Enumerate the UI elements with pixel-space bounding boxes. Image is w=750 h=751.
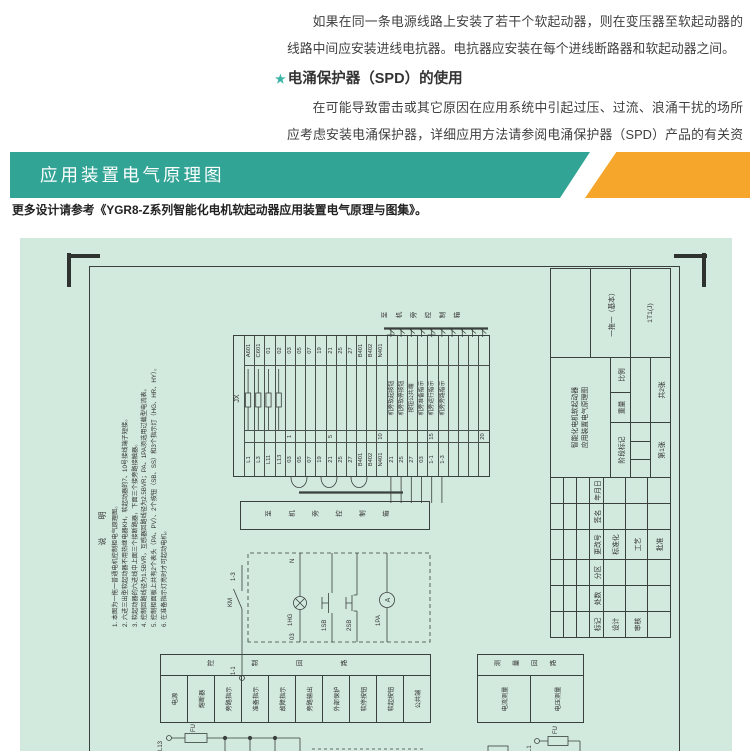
terminal-row: 07 07 bbox=[305, 336, 315, 476]
wire-label: N bbox=[290, 559, 297, 563]
drawing-title-cell: 智能化电机软起动器 应用装置电气原理图 bbox=[551, 357, 611, 477]
revision-header-cell: 分区 bbox=[590, 560, 604, 586]
control-circuit-fragment bbox=[167, 734, 424, 751]
terminal-description: 机旁运行指示 bbox=[428, 366, 437, 431]
terminal-description bbox=[357, 366, 366, 431]
terminal-wire: 25 bbox=[337, 336, 346, 366]
button-label: 2SB bbox=[347, 620, 354, 631]
standard-label: 标准化 bbox=[604, 530, 626, 560]
terminal-rows: L1 A601 L3 C601 L11 bbox=[244, 336, 489, 476]
sheet-total: 共2张 bbox=[651, 357, 671, 422]
terminal-row: L13 02 bbox=[275, 336, 285, 476]
control-station-box: 至机旁控制箱 bbox=[240, 501, 430, 530]
terminal-row: 03 1 03 bbox=[285, 336, 295, 476]
terminal-description bbox=[459, 366, 468, 431]
drawing-area: 说 明 1. 本图为一拖一普通电机控制柜电气原理图。2. 六进三出型软起动器不用… bbox=[20, 238, 732, 751]
terminal-number bbox=[398, 431, 407, 443]
terminal-row: N401 10 N401 bbox=[376, 336, 386, 476]
legend-header: 测量回路 bbox=[478, 655, 584, 676]
approve-label: 批准 bbox=[648, 530, 671, 560]
legend-cell: 旁路输出 bbox=[296, 676, 323, 723]
terminal-number bbox=[265, 431, 274, 443]
terminal-name: 03 bbox=[286, 443, 295, 476]
terminal-wire bbox=[418, 336, 427, 366]
button-label: 1SB bbox=[322, 620, 329, 631]
revision-header-cell: 签名 bbox=[590, 504, 604, 530]
reference-caption: 更多设计请参考《YGR8-Z系列智能化电机软起动器应用装置电气原理与图集》。 bbox=[12, 201, 732, 218]
terminal-wire: B401 bbox=[357, 336, 366, 366]
terminal-number: 10 bbox=[377, 431, 386, 443]
design-label: 设计 bbox=[604, 612, 626, 638]
terminal-name: 27 bbox=[408, 443, 417, 476]
terminal-name: L1 bbox=[245, 443, 254, 476]
terminal-row: 03 机旁准备指示 bbox=[417, 336, 427, 476]
wire-label: 1-3 bbox=[231, 572, 238, 581]
terminal-row: 21 5 21 bbox=[326, 336, 336, 476]
terminal-number bbox=[255, 431, 264, 443]
legend-cell: 电流测量 bbox=[478, 676, 531, 723]
terminal-number bbox=[306, 431, 315, 443]
terminal-number bbox=[449, 431, 458, 443]
terminal-wire bbox=[459, 336, 468, 366]
sheet-number: 第1张 bbox=[651, 423, 671, 478]
terminal-description: 机旁准备指示 bbox=[418, 366, 427, 431]
terminal-number: 1 bbox=[286, 431, 295, 443]
drawing-title-line2: 应用装置电气原理图 bbox=[581, 358, 591, 477]
revision-header-cell: 年月日 bbox=[590, 478, 604, 504]
terminal-number bbox=[316, 431, 325, 443]
terminal-wire: 02 bbox=[276, 336, 285, 366]
scale-label: 比例 bbox=[611, 357, 631, 392]
terminal-row: 1-1 15 机旁运行指示 bbox=[427, 336, 437, 476]
lamp-symbol bbox=[294, 553, 307, 642]
revision-header-cell: 更改号 bbox=[590, 530, 604, 560]
revision-header-row: 标记处数分区更改号签名年月日 bbox=[590, 478, 604, 638]
terminal-wire: 07 bbox=[306, 336, 315, 366]
terminal-wire bbox=[469, 336, 478, 366]
terminal-name: 03 bbox=[418, 443, 427, 476]
control-legend-table: 电源 控制回路 熔断器 旁路指示 准备指示 故障指示 旁路输出 外部保护 软停按… bbox=[160, 654, 431, 723]
terminal-description bbox=[377, 366, 386, 431]
terminal-table: JX L1 A601 L3 C601 bbox=[233, 335, 490, 477]
terminal-row: L3 C601 bbox=[254, 336, 264, 476]
legend-cell: 电压测量 bbox=[531, 676, 584, 723]
terminal-description: 按钮公共端 bbox=[408, 366, 417, 431]
terminal-name bbox=[459, 443, 468, 476]
terminal-row: 21 机旁软起按钮 bbox=[387, 336, 397, 476]
section-title: 应用装置电气原理图 bbox=[40, 162, 225, 187]
wire-label: L1 bbox=[527, 745, 534, 751]
terminal-wire: 19 bbox=[316, 336, 325, 366]
terminal-number bbox=[245, 431, 254, 443]
terminal-description bbox=[286, 366, 295, 431]
terminal-number: 15 bbox=[428, 431, 437, 443]
craft-label: 工艺 bbox=[626, 530, 648, 560]
drawing-title-line1: 智能化电机软起动器 bbox=[571, 358, 581, 477]
schematic-sheet: 说 明 1. 本图为一拖一普通电机控制柜电气原理图。2. 六进三出型软起动器不用… bbox=[85, 255, 705, 751]
contact-label: KM bbox=[228, 598, 235, 607]
intro-text-block: 如果在同一条电源线路上安装了若干个软起动器，则在变压器至软起动器的线路中间应安装… bbox=[287, 8, 743, 175]
terminal-wire: 27 bbox=[347, 336, 356, 366]
terminal-name: 25 bbox=[398, 443, 407, 476]
terminal-description bbox=[449, 366, 458, 431]
terminal-row bbox=[468, 336, 478, 476]
paragraph-line: 如果在同一条电源线路上安装了若干个软起动器，则在变压器至软起动器的 bbox=[313, 14, 743, 29]
terminal-number: 20 bbox=[479, 431, 488, 443]
terminal-name: B401 bbox=[357, 443, 366, 476]
legend-cell: 准备指示 bbox=[242, 676, 269, 723]
legend-cell: 故障指示 bbox=[269, 676, 296, 723]
dashed-panel-box bbox=[248, 553, 430, 642]
terminal-row: B401 B401 bbox=[356, 336, 366, 476]
terminal-row: 27 27 bbox=[346, 336, 356, 476]
terminal-number bbox=[296, 431, 305, 443]
wire-label: L13 bbox=[158, 741, 165, 751]
terminal-wire bbox=[449, 336, 458, 366]
terminal-name: L13 bbox=[276, 443, 285, 476]
terminal-row: L1 A601 bbox=[244, 336, 254, 476]
legend-cell: 软停按钮 bbox=[350, 676, 377, 723]
terminal-table-title: JX bbox=[234, 366, 244, 431]
terminal-name: 25 bbox=[337, 443, 346, 476]
terminal-name bbox=[479, 443, 488, 476]
legend-cell: 电源 bbox=[161, 676, 188, 723]
terminal-wire: A601 bbox=[245, 336, 254, 366]
terminal-number bbox=[388, 431, 397, 443]
terminal-number bbox=[408, 431, 417, 443]
terminal-number bbox=[439, 431, 448, 443]
terminal-name: 21 bbox=[388, 443, 397, 476]
terminal-description bbox=[265, 366, 274, 431]
terminal-description bbox=[337, 366, 346, 431]
terminal-name: 21 bbox=[327, 443, 336, 476]
terminal-wire: B402 bbox=[367, 336, 376, 366]
revision-header-cell: 处数 bbox=[590, 586, 604, 612]
measure-circuit-fragment bbox=[488, 737, 580, 751]
terminal-description bbox=[347, 366, 356, 431]
titleblock-number: 一拖一（基本） 1T1(J) bbox=[550, 268, 671, 358]
terminal-name: 1-3 bbox=[439, 443, 448, 476]
terminal-description: 机旁旁路指示 bbox=[439, 366, 448, 431]
titleblock-title: 智能化电机软起动器 应用装置电气原理图 阶段标记重量比例 第1张共2张 bbox=[550, 357, 671, 478]
terminal-name: B402 bbox=[367, 443, 376, 476]
scheme-label: 一拖一（基本） bbox=[591, 269, 631, 358]
cable-destination-label: 至机旁控制箱 bbox=[381, 312, 485, 322]
fuse-label: FU bbox=[553, 726, 560, 734]
terminal-wire: 21 bbox=[327, 336, 336, 366]
paragraph-line: 在可能导致雷击或其它原因在应用系统中引起过压、过流、浪涌干扰的场所 bbox=[313, 100, 743, 115]
terminal-wire bbox=[398, 336, 407, 366]
terminal-name: 27 bbox=[347, 443, 356, 476]
check-label: 审核 bbox=[626, 612, 648, 638]
ammeter-letter: A bbox=[385, 597, 392, 602]
terminal-row: 05 05 bbox=[295, 336, 305, 476]
terminal-row: 20 bbox=[478, 336, 488, 476]
legend-cell: 软起按钮 bbox=[377, 676, 404, 723]
terminal-number bbox=[357, 431, 366, 443]
terminal-wire bbox=[388, 336, 397, 366]
legend-cell: 公共端 bbox=[404, 676, 431, 723]
terminal-number bbox=[276, 431, 285, 443]
terminal-wire bbox=[428, 336, 437, 366]
paragraph-reactor: 如果在同一条电源线路上安装了若干个软起动器，则在变压器至软起动器的线路中间应安装… bbox=[287, 8, 743, 62]
banner-orange-accent bbox=[585, 152, 750, 198]
corner-mark bbox=[67, 253, 71, 287]
terminal-wire bbox=[479, 336, 488, 366]
terminal-wire bbox=[408, 336, 417, 366]
terminal-wire: 03 bbox=[286, 336, 295, 366]
terminal-number bbox=[337, 431, 346, 443]
terminal-description bbox=[316, 366, 325, 431]
legend-cell: 外部保护 bbox=[323, 676, 350, 723]
terminal-description bbox=[306, 366, 315, 431]
legend-cell: 旁路指示 bbox=[215, 676, 242, 723]
section-banner: 应用装置电气原理图 bbox=[0, 152, 750, 198]
terminal-number bbox=[367, 431, 376, 443]
terminal-name: 05 bbox=[296, 443, 305, 476]
terminal-name: L11 bbox=[265, 443, 274, 476]
cable-hooks bbox=[291, 477, 442, 503]
terminal-name: N401 bbox=[377, 443, 386, 476]
terminal-description bbox=[327, 366, 336, 431]
measure-legend-table: 电流测量 测量回路 电压测量 bbox=[477, 654, 584, 723]
terminal-wire: N401 bbox=[377, 336, 386, 366]
terminal-row: 1-3 机旁旁路指示 bbox=[438, 336, 448, 476]
terminal-name bbox=[469, 443, 478, 476]
stage-label: 阶段标记 bbox=[611, 423, 631, 478]
terminal-description bbox=[469, 366, 478, 431]
terminal-description: 机旁软起按钮 bbox=[388, 366, 397, 431]
banner-teal-shape: 应用装置电气原理图 bbox=[10, 152, 590, 198]
control-station-label: 至机旁控制箱 bbox=[265, 511, 406, 521]
terminal-row: L11 01 bbox=[264, 336, 274, 476]
terminal-row bbox=[448, 336, 458, 476]
terminal-name: L3 bbox=[255, 443, 264, 476]
terminal-row: B402 B402 bbox=[366, 336, 376, 476]
terminal-number: 5 bbox=[327, 431, 336, 443]
wire-label: 03 bbox=[290, 633, 297, 640]
legend-cell: 熔断器 bbox=[188, 676, 215, 723]
terminal-name: 19 bbox=[316, 443, 325, 476]
revision-header-cell: 标记 bbox=[590, 612, 604, 638]
spd-heading-text: 电涌保护器（SPD）的使用 bbox=[288, 71, 463, 87]
terminal-wire: 05 bbox=[296, 336, 305, 366]
terminal-row: 25 机旁软停按钮 bbox=[397, 336, 407, 476]
terminal-description: 机旁软停按钮 bbox=[398, 366, 407, 431]
terminal-row bbox=[458, 336, 468, 476]
terminal-description bbox=[479, 366, 488, 431]
spd-heading: ★电涌保护器（SPD）的使用 bbox=[275, 66, 743, 92]
meter-label: 1PA bbox=[376, 615, 383, 626]
terminal-wire: C601 bbox=[255, 336, 264, 366]
titleblock-revision: 标记处数分区更改号签名年月日 设计标准化 审核工艺 批准 bbox=[550, 477, 671, 638]
document-page: 如果在同一条电源线路上安装了若干个软起动器，则在变压器至软起动器的线路中间应安装… bbox=[0, 0, 750, 751]
terminal-description bbox=[255, 366, 264, 431]
terminal-wire bbox=[439, 336, 448, 366]
terminal-wire: 01 bbox=[265, 336, 274, 366]
terminal-description bbox=[296, 366, 305, 431]
terminal-row: 25 25 bbox=[336, 336, 346, 476]
terminal-row: 27 按钮公共端 bbox=[407, 336, 417, 476]
legend-header: 控制回路 bbox=[161, 655, 431, 676]
terminal-name: 07 bbox=[306, 443, 315, 476]
terminal-number bbox=[418, 431, 427, 443]
weight-label: 重量 bbox=[611, 393, 631, 423]
drawing-number: 1T1(J) bbox=[631, 269, 671, 358]
terminal-description bbox=[245, 366, 254, 431]
terminal-number bbox=[459, 431, 468, 443]
fuse-label: FU bbox=[191, 724, 198, 732]
terminal-description bbox=[367, 366, 376, 431]
lamp-label: 1HG bbox=[288, 614, 295, 626]
terminal-name: 1-1 bbox=[428, 443, 437, 476]
terminal-name bbox=[449, 443, 458, 476]
terminal-row: 19 19 bbox=[315, 336, 325, 476]
star-icon: ★ bbox=[275, 72, 286, 86]
terminal-number bbox=[347, 431, 356, 443]
terminal-description bbox=[276, 366, 285, 431]
terminal-number bbox=[469, 431, 478, 443]
paragraph-line: 线路中间应安装进线电抗器。电抗器应安装在每个进线断路器和软起动器之间。 bbox=[287, 41, 735, 56]
